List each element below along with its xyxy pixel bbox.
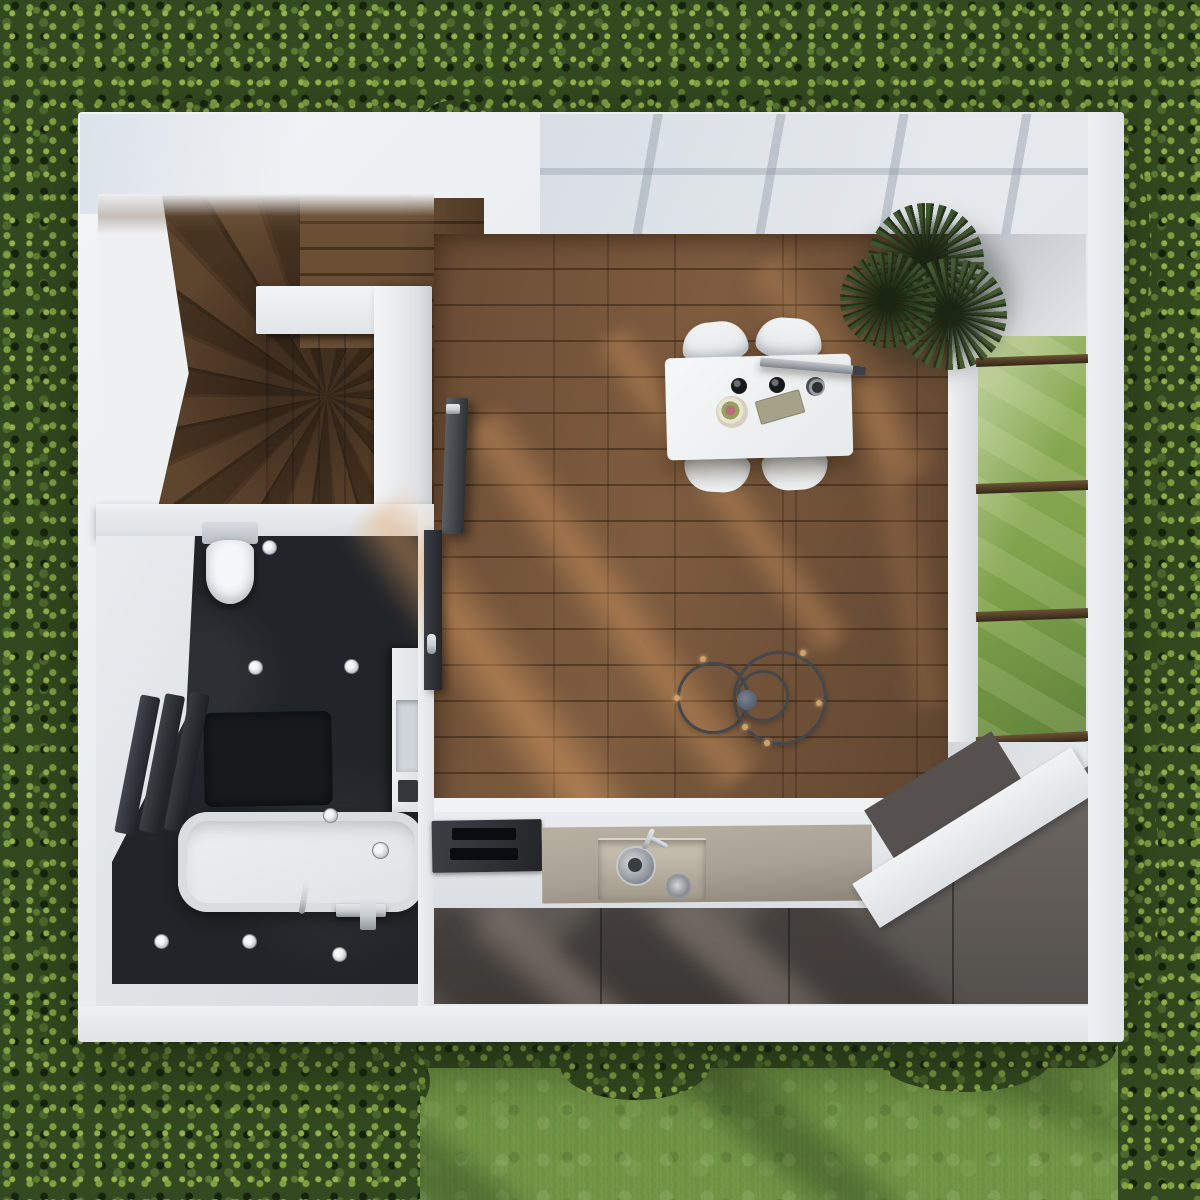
- cup: [806, 377, 825, 396]
- pendant-end-cap: [852, 366, 866, 376]
- chandelier-canopy: [737, 690, 757, 710]
- pot-lid-knob: [628, 858, 642, 872]
- chandelier-bulb: [800, 650, 806, 656]
- chandelier-bulb: [764, 740, 770, 746]
- counter-seam: [788, 900, 790, 1008]
- right-wall-band: [1088, 112, 1124, 1042]
- closet-seam: [344, 334, 346, 516]
- tv-bracket: [446, 404, 460, 414]
- steel-backsplash: [542, 825, 873, 904]
- wine-bottle: [731, 378, 747, 394]
- ceiling-spotlight: [248, 660, 263, 675]
- window-glass: [978, 336, 1086, 746]
- ceiling-spotlight: [332, 947, 347, 962]
- window-sill: [948, 336, 978, 746]
- wine-bottle: [769, 377, 785, 393]
- counter-seam: [600, 908, 602, 1008]
- bottom-wall-band: [78, 1006, 1124, 1042]
- tub-drain: [372, 842, 389, 859]
- ceiling-spotlight: [154, 934, 169, 949]
- chandelier-bulb: [674, 695, 680, 701]
- vanity-accessory: [398, 780, 418, 802]
- stair-guard-wall-v: [374, 286, 432, 518]
- toilet: [206, 540, 254, 604]
- ceiling-spotlight: [344, 659, 359, 674]
- ceiling-spotlight: [323, 808, 338, 823]
- roof-glass-reflection: [540, 114, 1122, 236]
- stair-room-overhang-shadow: [98, 194, 434, 234]
- cooktop-burner: [450, 848, 518, 860]
- chandelier-bulb: [742, 724, 748, 730]
- cooktop-burner: [452, 828, 516, 840]
- scene: [0, 0, 1200, 1200]
- console-radiator: [424, 530, 442, 690]
- vanity-basin: [396, 700, 420, 772]
- chandelier-bulb: [700, 656, 706, 662]
- closet-seam: [318, 334, 320, 516]
- chandelier-bulb: [816, 700, 822, 706]
- under-stair-closet: [266, 334, 374, 516]
- plant-frond-cluster: [840, 252, 936, 348]
- ceiling-spotlight: [242, 934, 257, 949]
- pot-small: [666, 874, 691, 899]
- flush-button: [262, 540, 277, 555]
- closet-seam: [292, 334, 294, 516]
- console-handle: [427, 634, 436, 654]
- bath-mat: [203, 711, 333, 807]
- plate: [716, 396, 748, 428]
- tub-faucet-body: [360, 896, 376, 930]
